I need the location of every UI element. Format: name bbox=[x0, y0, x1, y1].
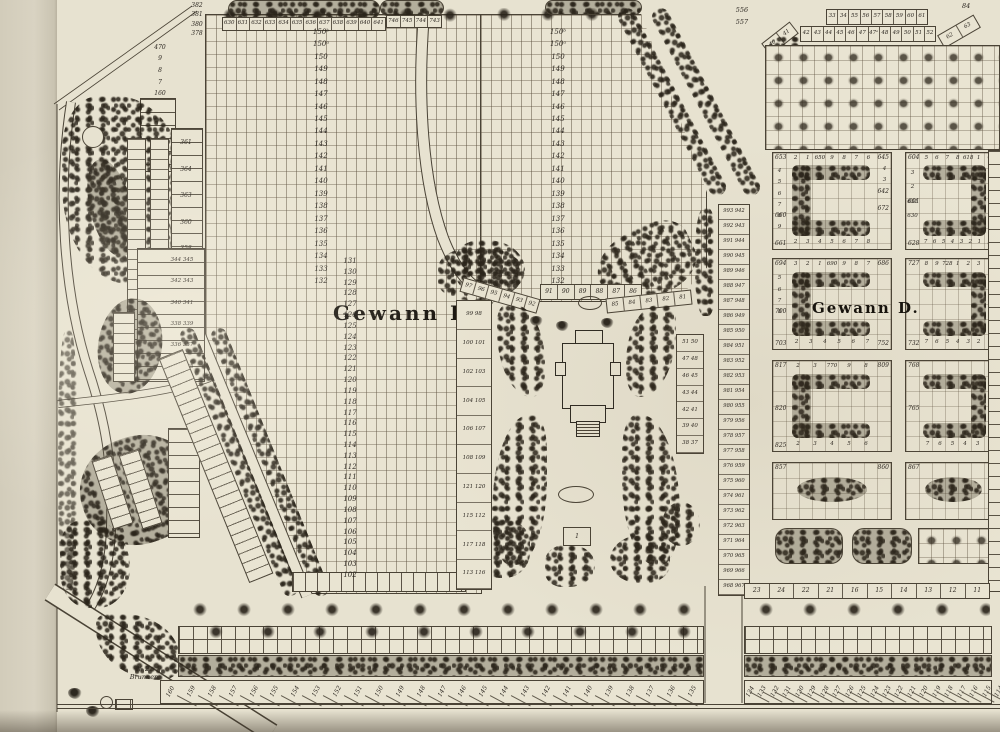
plot-number-pair: 100 101 bbox=[457, 330, 491, 359]
scanned-map-photo: { "labels": { "gewann_west": "Gewann F."… bbox=[0, 0, 1000, 732]
grave-number: 618 bbox=[963, 154, 974, 164]
plot-number: 639 bbox=[344, 18, 358, 30]
plot-number: 44 bbox=[823, 27, 834, 41]
plot-number-pair: 342 343 bbox=[163, 271, 201, 292]
southeast-hedge-oval-1 bbox=[775, 528, 843, 564]
block-corner-number: 661 bbox=[775, 241, 786, 247]
block-corner-number: 867 bbox=[908, 465, 919, 471]
block-digit-row: 23456 bbox=[790, 440, 875, 450]
grave-number: 3 bbox=[807, 362, 824, 372]
plot-number-pair: 984 951 bbox=[719, 340, 749, 355]
grave-row-number: 150 bbox=[305, 51, 337, 63]
plot-number: 470 bbox=[149, 42, 171, 54]
east-strip-grove bbox=[695, 208, 717, 316]
grave-row-number: 104 bbox=[334, 548, 366, 559]
plot-number: 743 bbox=[427, 16, 441, 27]
chapel-main-block bbox=[562, 343, 614, 409]
plot-number: 61 bbox=[916, 10, 927, 24]
grave-row-number: 111 bbox=[334, 473, 366, 484]
plot-number: 11 bbox=[965, 584, 990, 598]
east-pairs-strip: 993 942992 943991 944990 945989 946988 9… bbox=[718, 204, 750, 596]
plot-number: 21 bbox=[818, 584, 843, 598]
plot-number-pair: 42 41 bbox=[677, 402, 703, 419]
grave-row-number: 114 bbox=[334, 440, 366, 451]
east-edge-strip bbox=[988, 150, 1000, 592]
grave-row-number: 150ᵃ bbox=[305, 38, 337, 50]
grave-number: 4 bbox=[959, 440, 972, 450]
grave-row-number: 138 bbox=[542, 201, 574, 213]
grave-number: 5 bbox=[840, 440, 857, 450]
southeast-hedge-oval-2 bbox=[852, 528, 912, 564]
plot-number: 745 bbox=[400, 16, 414, 27]
grave-number: 3 bbox=[804, 338, 818, 348]
grave-number: 2 bbox=[790, 440, 807, 450]
grave-number: 7 bbox=[850, 154, 862, 164]
grave-number: 2 bbox=[790, 338, 804, 348]
plot-number: 47ᵃ bbox=[868, 27, 879, 41]
plot-number: 55 bbox=[848, 10, 859, 24]
grave-row-number: 118 bbox=[334, 397, 366, 408]
field-east-plot-column: 150ᵇ150ᵃ15014914814714614514414314214114… bbox=[542, 26, 574, 288]
plot-number: 632 bbox=[249, 18, 263, 30]
plot-number: 43 bbox=[811, 27, 822, 41]
plot-number: 557 bbox=[731, 16, 753, 28]
grave-number: 6 bbox=[862, 154, 874, 164]
grave-number: 4 bbox=[774, 166, 785, 177]
plot-number: 363 bbox=[172, 183, 200, 210]
plot-number: 51 bbox=[913, 27, 924, 41]
grave-row-number: 119 bbox=[334, 386, 366, 397]
hedge-bar bbox=[923, 220, 986, 235]
grave-row-number: 128 bbox=[334, 288, 366, 299]
plot-number-pair: 113 116 bbox=[457, 560, 491, 589]
grave-number: 8 bbox=[774, 211, 785, 222]
plot-number-pair: 971 964 bbox=[719, 535, 749, 550]
grave-number: 5 bbox=[826, 238, 838, 248]
plot-number: 635 bbox=[290, 18, 304, 30]
hedge-bar bbox=[923, 321, 986, 336]
grave-number: 3 bbox=[807, 440, 824, 450]
block-digit-row: 765432 bbox=[921, 338, 984, 348]
plot-number: 56 bbox=[860, 10, 871, 24]
plot-number: 9 bbox=[149, 54, 171, 66]
plot-number-pair: 43 44 bbox=[677, 386, 703, 403]
grave-number: 5 bbox=[942, 338, 952, 348]
chapel-side-notch-east bbox=[610, 362, 621, 376]
plot-number-pair: 993 942 bbox=[719, 205, 749, 220]
grave-row-number: 136 bbox=[305, 226, 337, 238]
plot-number: 361 bbox=[172, 130, 200, 157]
grave-row-number: 139 bbox=[305, 188, 337, 200]
family-block-c-east: 768 776 765 76543 bbox=[905, 360, 1000, 452]
block-digit-row: 2377098 bbox=[790, 362, 875, 372]
chapel-plot-number: 1 bbox=[575, 533, 579, 540]
block-corner-number: 857 bbox=[775, 465, 786, 471]
grave-row-number: 137 bbox=[542, 213, 574, 225]
grave-number: 728 bbox=[942, 260, 953, 270]
grave-row-number: 143 bbox=[305, 138, 337, 150]
block-digit-col: 43 bbox=[879, 165, 890, 186]
grave-number: 1 bbox=[802, 154, 814, 164]
grave-number: 8 bbox=[774, 307, 785, 318]
bottom-cell-strip-east bbox=[744, 626, 992, 654]
grave-number: 3 bbox=[879, 175, 890, 186]
grave-number: 3 bbox=[802, 238, 814, 248]
chapel-steps bbox=[576, 421, 600, 437]
grave-row-number: 141 bbox=[542, 163, 574, 175]
grave-row-number: 148 bbox=[305, 76, 337, 88]
plot-number: 631 bbox=[236, 18, 250, 30]
grave-number: 1 bbox=[814, 260, 826, 270]
grave-number: 9 bbox=[774, 222, 785, 233]
plot-number: 57 bbox=[871, 10, 882, 24]
plot-number-pair: 974 961 bbox=[719, 490, 749, 505]
bottom-tree-row-east bbox=[744, 596, 990, 626]
field-west-plot-column-upper: 150ᵇ150ᵃ15014914814714614514414314214114… bbox=[305, 26, 337, 288]
plot-number-pair: 47 48 bbox=[677, 352, 703, 369]
block-corner-number: 820 bbox=[775, 406, 786, 412]
block-digit-row: 76543 bbox=[921, 440, 984, 450]
plaza-ellipse-south bbox=[558, 486, 594, 503]
plot-number: 630 bbox=[223, 18, 236, 30]
plot-number-pair: 46 45 bbox=[677, 369, 703, 386]
plot-number-pair: 988 947 bbox=[719, 280, 749, 295]
grave-row-number: 138 bbox=[305, 201, 337, 213]
top-right-labels: 556557 bbox=[731, 4, 753, 28]
grave-row-number: 142 bbox=[305, 151, 337, 163]
plot-number-pair: 991 944 bbox=[719, 235, 749, 250]
grave-row-number: 121 bbox=[334, 364, 366, 375]
plot-number: 640 bbox=[358, 18, 372, 30]
grave-row-number: 150 bbox=[542, 51, 574, 63]
chapel-building bbox=[555, 330, 619, 444]
grave-number: 6 bbox=[838, 238, 850, 248]
grave-number: 631 bbox=[907, 195, 918, 209]
plot-number: 14 bbox=[891, 584, 916, 598]
hedge-bar bbox=[923, 423, 986, 438]
grave-number: 7 bbox=[860, 338, 874, 348]
grave-row-number: 110 bbox=[334, 483, 366, 494]
plot-number-pair: 104 105 bbox=[457, 387, 491, 416]
plaza-grove-s4 bbox=[662, 502, 700, 546]
grave-row-number: 134 bbox=[542, 250, 574, 262]
well-label: № 2. Brunnen bbox=[112, 666, 176, 682]
grave-row-number: 140 bbox=[305, 176, 337, 188]
gewann-west-label: Gewann F. bbox=[333, 301, 475, 325]
plot-number-pair: 985 950 bbox=[719, 325, 749, 340]
grave-number: 6 bbox=[934, 440, 947, 450]
grave-row-number: 135 bbox=[542, 238, 574, 250]
grave-number: 6 bbox=[932, 154, 942, 164]
grave-row-number: 124 bbox=[334, 332, 366, 343]
plot-number-pair: 976 959 bbox=[719, 460, 749, 475]
block-corner-number: 628 bbox=[908, 241, 919, 247]
grave-number: 6 bbox=[846, 338, 860, 348]
plot-number-pair: 99 98 bbox=[457, 301, 491, 330]
left-edge-plot-column: 470987160 bbox=[149, 42, 171, 100]
plot-number-pair: 340 341 bbox=[163, 293, 201, 314]
plaza-pairs-east: 51 5047 4846 4543 4442 4139 4038 37 bbox=[676, 334, 704, 454]
plot-number-pair: 978 957 bbox=[719, 430, 749, 445]
plot-number: 633 bbox=[263, 18, 277, 30]
grave-row-number: 145 bbox=[542, 113, 574, 125]
bottom-hedge-strip-east bbox=[744, 655, 992, 677]
top-plot-row: 630631632633634635636637638639640641 bbox=[222, 17, 386, 31]
plot-number: 641 bbox=[371, 18, 385, 30]
well-label-name: Brunnen bbox=[112, 674, 176, 682]
block-corner-number: 752 bbox=[878, 341, 889, 347]
plot-number-pair: 38 37 bbox=[677, 436, 703, 453]
plot-number: 50 bbox=[901, 27, 912, 41]
grave-row-number: 150ᵇ bbox=[542, 26, 574, 38]
plot-number-pair: 108 109 bbox=[457, 445, 491, 474]
block-corner-number: 645 bbox=[878, 155, 889, 161]
block-digit-row: 321690987 bbox=[790, 260, 875, 270]
grave-row-number: 146 bbox=[542, 101, 574, 113]
southeast-small-cells bbox=[918, 528, 990, 564]
grave-number: 9 bbox=[840, 362, 857, 372]
grave-row-number: 145 bbox=[305, 113, 337, 125]
grave-row-number: 109 bbox=[334, 494, 366, 505]
plot-number: 378 bbox=[186, 30, 208, 40]
family-block-c-west: 817 809 820 825 2377098 23456 bbox=[772, 360, 892, 452]
grave-row-number: 135 bbox=[305, 238, 337, 250]
grave-row-number: 144 bbox=[305, 126, 337, 138]
grave-number: 8 bbox=[850, 260, 862, 270]
block-corner-number: 703 bbox=[775, 341, 786, 347]
grave-number: 4 bbox=[814, 238, 826, 248]
bottom-hedge-strip-west bbox=[178, 655, 704, 677]
bottom-strip-trees-overlay bbox=[190, 620, 702, 646]
block-corner-number: 686 bbox=[878, 261, 889, 267]
plot-number: 52 bbox=[924, 27, 935, 41]
grave-row-number: 136 bbox=[542, 226, 574, 238]
plot-number-pair: 121 120 bbox=[457, 474, 491, 503]
grave-row-number: 130 bbox=[334, 267, 366, 278]
plot-number: 7 bbox=[149, 77, 171, 89]
plaza-pairs-west: 99 98100 101102 103104 105106 107108 109… bbox=[456, 300, 492, 590]
grave-row-number: 123 bbox=[334, 343, 366, 354]
grave-number: 4 bbox=[823, 440, 840, 450]
grave-row-number: 122 bbox=[334, 353, 366, 364]
family-block-d-east: 867 bbox=[905, 462, 1000, 520]
plot-number-pair: 969 966 bbox=[719, 565, 749, 580]
plot-number-pair: 117 118 bbox=[457, 531, 491, 560]
plot-number: 12 bbox=[940, 584, 965, 598]
grave-number: 650 bbox=[814, 154, 826, 164]
gewann-east-label: Gewann D. bbox=[812, 299, 920, 317]
grave-number: 5 bbox=[774, 178, 785, 189]
hedge-bar bbox=[925, 477, 982, 502]
grave-number: 5 bbox=[774, 273, 785, 284]
plot-number: 15 bbox=[867, 584, 892, 598]
grave-row-number: 143 bbox=[542, 138, 574, 150]
plot-number: 45 bbox=[834, 27, 845, 41]
grave-number: 6 bbox=[857, 440, 874, 450]
plot-number-pair: 987 948 bbox=[719, 295, 749, 310]
plaza-ellipse-north bbox=[578, 296, 602, 310]
plot-number: 34 bbox=[837, 10, 848, 24]
plot-number: 634 bbox=[276, 18, 290, 30]
plot-number: 556 bbox=[731, 4, 753, 16]
grave-row-number: 148 bbox=[542, 76, 574, 88]
block-corner-number: 768 bbox=[908, 363, 919, 369]
grave-number: 3 bbox=[790, 260, 802, 270]
plot-number-pair: 979 956 bbox=[719, 415, 749, 430]
plot-number: 46 bbox=[845, 27, 856, 41]
block-corner-number: 809 bbox=[878, 363, 889, 369]
plot-number: 23 bbox=[745, 584, 769, 598]
plot-number-pair: 982 953 bbox=[719, 370, 749, 385]
block-digit-row: 234567 bbox=[790, 338, 875, 348]
plot-number-pair: 970 965 bbox=[719, 550, 749, 565]
plot-number-pair: 990 945 bbox=[719, 250, 749, 265]
grave-number: 9 bbox=[838, 260, 850, 270]
grave-number: 4 bbox=[953, 338, 963, 348]
grave-number: 7 bbox=[774, 296, 785, 307]
sheet-corner-line2 bbox=[59, 11, 197, 110]
hedge-bar bbox=[792, 321, 870, 336]
grave-number: 7 bbox=[774, 200, 785, 211]
grave-number: 2 bbox=[973, 338, 983, 348]
plot-number: 91 bbox=[541, 285, 557, 299]
plot-number: 13 bbox=[916, 584, 941, 598]
grave-row-number: 131 bbox=[334, 256, 366, 267]
grave-number: 4 bbox=[948, 238, 957, 248]
grave-row-number: 133 bbox=[305, 263, 337, 275]
plot-number: 380 bbox=[186, 20, 208, 30]
grave-number: 2 bbox=[802, 260, 814, 270]
grave-row-number: 140 bbox=[542, 176, 574, 188]
plot-number: 744 bbox=[414, 16, 428, 27]
grave-number: 6 bbox=[932, 338, 942, 348]
grave-row-number: 147 bbox=[305, 88, 337, 100]
plaza-grove-s3 bbox=[610, 535, 670, 583]
plot-number: 8 bbox=[149, 65, 171, 77]
bottom-rule-1 bbox=[57, 704, 1000, 705]
block-corner-number: 672 bbox=[878, 206, 889, 212]
hedge-bar bbox=[792, 423, 870, 438]
plot-number-pair: 983 952 bbox=[719, 355, 749, 370]
plot-number: 84 bbox=[622, 296, 640, 311]
grave-number: 7 bbox=[921, 440, 934, 450]
block-corner-number: 765 bbox=[908, 406, 919, 412]
grave-number: 2 bbox=[790, 362, 807, 372]
block-digit-row: 56786181 bbox=[921, 154, 984, 164]
grave-number: 690 bbox=[826, 260, 838, 270]
grave-number: 3 bbox=[963, 338, 973, 348]
grave-number: 6 bbox=[930, 238, 939, 248]
block-corner-number: 825 bbox=[775, 443, 786, 449]
grave-number: 9 bbox=[826, 154, 838, 164]
grave-number: 1 bbox=[973, 154, 983, 164]
plot-number-pair: 106 107 bbox=[457, 416, 491, 445]
grave-number: 2 bbox=[966, 238, 975, 248]
top-left-plot-column: 382381380378 bbox=[186, 1, 208, 39]
plot-number-pair: 986 949 bbox=[719, 310, 749, 325]
grave-number: 5 bbox=[832, 338, 846, 348]
grave-number: 7 bbox=[921, 338, 931, 348]
west-oval2-ladder bbox=[113, 312, 135, 382]
plot-number: 47 bbox=[856, 27, 867, 41]
grave-number: 2 bbox=[790, 238, 802, 248]
grave-row-number: 115 bbox=[334, 429, 366, 440]
grave-number: 3 bbox=[971, 440, 984, 450]
plot-number-pair: 980 955 bbox=[719, 400, 749, 415]
block-corner-number: 642 bbox=[878, 189, 889, 195]
grave-row-number: 134 bbox=[305, 250, 337, 262]
grave-number: 1 bbox=[953, 260, 963, 270]
chapel-plot-cell: 1 bbox=[563, 527, 591, 546]
hedge-bar bbox=[792, 220, 870, 235]
grave-row-number: 117 bbox=[334, 408, 366, 419]
grave-number: 630 bbox=[907, 210, 918, 224]
plot-number-pair: 973 962 bbox=[719, 505, 749, 520]
bottom-plot-row-east: 1341331321311301291281271261251241231221… bbox=[744, 680, 992, 704]
grave-row-number: 132 bbox=[305, 275, 337, 287]
block-corner-number: 732 bbox=[908, 341, 919, 347]
grave-number: 3 bbox=[907, 166, 918, 180]
grave-row-number: 137 bbox=[305, 213, 337, 225]
plot-number: 746 bbox=[387, 16, 400, 27]
grave-number: 4 bbox=[879, 165, 890, 176]
grave-number: 2 bbox=[907, 181, 918, 195]
bottom-rule-2 bbox=[57, 708, 1000, 709]
grave-row-number: 144 bbox=[542, 126, 574, 138]
grave-row-number: 139 bbox=[542, 188, 574, 200]
grave-row-number: 113 bbox=[334, 451, 366, 462]
plot-number-pair: 989 946 bbox=[719, 265, 749, 280]
tree bbox=[68, 688, 82, 699]
grave-number: 6 bbox=[774, 285, 785, 296]
grave-number: 4 bbox=[818, 338, 832, 348]
field-west-south-cells bbox=[292, 572, 466, 592]
corner-plot-84: 84 bbox=[962, 2, 970, 10]
plot-number-pair: 975 960 bbox=[719, 475, 749, 490]
hedge-bar bbox=[797, 477, 868, 502]
grave-number: 5 bbox=[939, 238, 948, 248]
block-corner-number: 604 bbox=[908, 155, 919, 161]
grave-row-number: 149 bbox=[305, 63, 337, 75]
plot-number: 16 bbox=[842, 584, 867, 598]
block-digit-row: 2345678 bbox=[790, 238, 875, 248]
block-digit-row: 7654321 bbox=[921, 238, 984, 248]
block-digit-col: 5678 bbox=[774, 273, 785, 318]
grave-row-number: 116 bbox=[334, 418, 366, 429]
plot-number: 364 bbox=[172, 157, 200, 184]
plot-number: 59 bbox=[893, 10, 904, 24]
plot-number: 135 bbox=[678, 678, 707, 707]
grave-number: 9 bbox=[932, 260, 942, 270]
grave-row-number: 141 bbox=[305, 163, 337, 175]
block-corner-number: 653 bbox=[775, 155, 786, 161]
grave-number: 7 bbox=[942, 154, 952, 164]
family-block-a-west: 653 645 660 661 642 672 216509876 456789… bbox=[772, 152, 892, 250]
grave-number: 7 bbox=[862, 260, 874, 270]
grave-row-number: 129 bbox=[334, 278, 366, 289]
plot-number: 382 bbox=[186, 1, 208, 11]
top-right-hedge-grid bbox=[765, 45, 1000, 150]
grave-row-number: 112 bbox=[334, 462, 366, 473]
grave-row-number: 105 bbox=[334, 538, 366, 549]
grave-number: 1 bbox=[975, 238, 984, 248]
tree bbox=[601, 318, 614, 328]
grave-row-number: 150ᵃ bbox=[542, 38, 574, 50]
plot-number: 58 bbox=[882, 10, 893, 24]
grave-row-number: 106 bbox=[334, 527, 366, 538]
bottom-plot-row-west: 1601591581571561551541531521511501491481… bbox=[160, 680, 704, 704]
grave-number: 8 bbox=[838, 154, 850, 164]
